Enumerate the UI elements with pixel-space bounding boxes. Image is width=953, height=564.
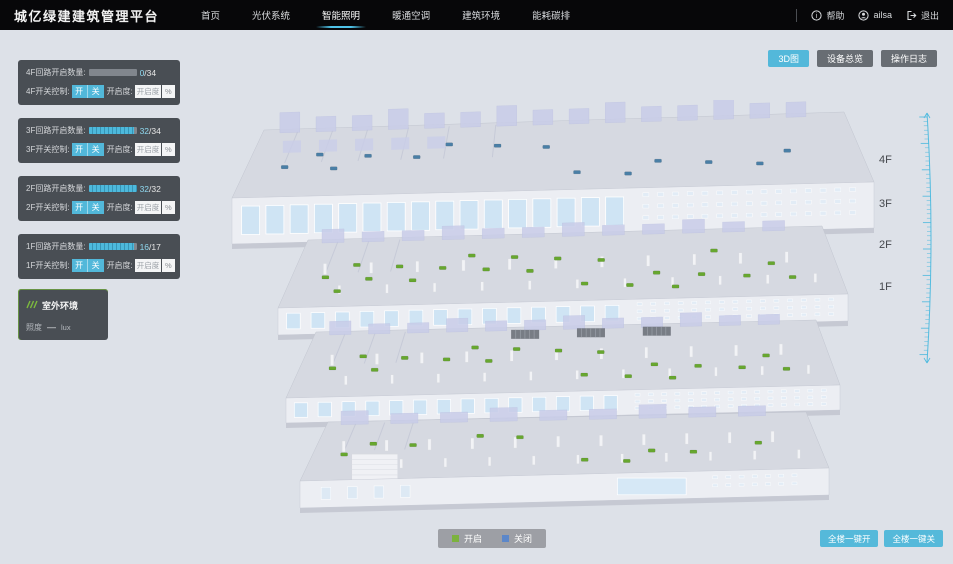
topbar-divider bbox=[796, 9, 797, 22]
floor-label-4f[interactable]: 4F bbox=[879, 154, 892, 166]
switch-group: 开 关 bbox=[72, 259, 104, 272]
switch-control-label: 2F开关控制: bbox=[26, 202, 70, 213]
dim-level-label: 开启度: bbox=[107, 202, 133, 213]
all-off-button[interactable]: 全楼一键关 bbox=[884, 530, 943, 547]
circuit-count-value: 32/32 bbox=[140, 184, 161, 194]
outdoor-panel-title: 室外环境 bbox=[42, 299, 78, 312]
illuminance-unit: lux bbox=[61, 323, 71, 332]
dim-level-label: 开启度: bbox=[107, 260, 133, 271]
circuit-count-label: 3F回路开启数量: bbox=[26, 125, 86, 136]
floor-label-2f[interactable]: 2F bbox=[879, 239, 892, 251]
app-title: 城亿绿建建筑管理平台 bbox=[14, 6, 159, 25]
switch-group: 开 关 bbox=[72, 143, 104, 156]
percent-button[interactable]: % bbox=[162, 85, 175, 98]
legend-on: 开启 bbox=[452, 532, 482, 545]
operation-log-button[interactable]: 操作日志 bbox=[881, 50, 937, 67]
nav-item-home[interactable]: 首页 bbox=[201, 4, 220, 26]
floor-panel-1f: 1F回路开启数量: 16/17 1F开关控制: 开 关 开启度: % bbox=[18, 234, 180, 279]
circuit-count-value: 16/17 bbox=[140, 242, 161, 252]
nav-item-pv[interactable]: 光伏系统 bbox=[252, 4, 290, 26]
switch-group: 开 关 bbox=[72, 201, 104, 214]
view-3d-button[interactable]: 3D图 bbox=[768, 50, 809, 67]
switch-on-button[interactable]: 开 bbox=[72, 259, 88, 272]
environment-icon bbox=[26, 296, 38, 314]
all-on-button[interactable]: 全楼一键开 bbox=[820, 530, 879, 547]
logout-button[interactable]: 退出 bbox=[906, 9, 939, 22]
status-legend: 开启 关闭 bbox=[438, 529, 546, 548]
nav-item-lighting[interactable]: 智能照明 bbox=[322, 4, 360, 26]
logout-icon bbox=[906, 10, 917, 21]
circuit-progress-bar bbox=[89, 69, 137, 76]
floor-control-column: 4F回路开启数量: 0/34 4F开关控制: 开 关 开启度: % 3F回路开启… bbox=[18, 60, 188, 340]
circuit-count-value: 32/34 bbox=[140, 126, 161, 136]
device-overview-button[interactable]: 设备总览 bbox=[817, 50, 873, 67]
legend-on-swatch bbox=[452, 535, 459, 542]
user-avatar-icon bbox=[858, 10, 869, 21]
switch-on-button[interactable]: 开 bbox=[72, 143, 88, 156]
nav-item-hvac[interactable]: 暖通空调 bbox=[392, 4, 430, 26]
building-3d-view[interactable] bbox=[222, 100, 882, 518]
main-nav: 首页 光伏系统 智能照明 暖通空调 建筑环境 能耗碳排 bbox=[201, 4, 570, 26]
circuit-count-label: 1F回路开启数量: bbox=[26, 241, 86, 252]
dim-level-label: 开启度: bbox=[107, 144, 133, 155]
percent-button[interactable]: % bbox=[162, 201, 175, 214]
dim-level-label: 开启度: bbox=[107, 86, 133, 97]
top-bar: 城亿绿建建筑管理平台 首页 光伏系统 智能照明 暖通空调 建筑环境 能耗碳排 i… bbox=[0, 0, 953, 30]
help-button[interactable]: i 帮助 bbox=[811, 9, 844, 22]
illuminance-label: 照度 bbox=[26, 322, 42, 333]
switch-off-button[interactable]: 关 bbox=[88, 259, 104, 272]
percent-button[interactable]: % bbox=[162, 143, 175, 156]
circuit-progress-bar bbox=[89, 243, 137, 250]
svg-text:i: i bbox=[816, 13, 818, 20]
circuit-count-label: 2F回路开启数量: bbox=[26, 183, 86, 194]
switch-on-button[interactable]: 开 bbox=[72, 201, 88, 214]
switch-off-button[interactable]: 关 bbox=[88, 201, 104, 214]
nav-item-env[interactable]: 建筑环境 bbox=[462, 4, 500, 26]
circuit-count-value: 0/34 bbox=[140, 68, 157, 78]
switch-group: 开 关 bbox=[72, 85, 104, 98]
legend-off: 关闭 bbox=[502, 532, 532, 545]
switch-control-label: 3F开关控制: bbox=[26, 144, 70, 155]
help-icon: i bbox=[811, 10, 822, 21]
floor-label-1f[interactable]: 1F bbox=[879, 281, 892, 293]
floor-panel-3f: 3F回路开启数量: 32/34 3F开关控制: 开 关 开启度: % bbox=[18, 118, 180, 163]
switch-on-button[interactable]: 开 bbox=[72, 85, 88, 98]
floor-scale-ruler bbox=[914, 107, 940, 369]
illuminance-value: — bbox=[47, 322, 56, 332]
switch-control-label: 1F开关控制: bbox=[26, 260, 70, 271]
user-menu[interactable]: ailsa bbox=[858, 10, 892, 21]
circuit-progress-bar bbox=[89, 185, 137, 192]
dim-level-input[interactable] bbox=[135, 201, 161, 214]
outdoor-environment-panel: 室外环境 照度 — lux bbox=[18, 289, 108, 340]
legend-off-swatch bbox=[502, 535, 509, 542]
dim-level-input[interactable] bbox=[135, 85, 161, 98]
switch-control-label: 4F开关控制: bbox=[26, 86, 70, 97]
switch-off-button[interactable]: 关 bbox=[88, 143, 104, 156]
floor-label-3f[interactable]: 3F bbox=[879, 198, 892, 210]
percent-button[interactable]: % bbox=[162, 259, 175, 272]
circuit-progress-bar bbox=[89, 127, 137, 134]
dim-level-input[interactable] bbox=[135, 143, 161, 156]
user-name: ailsa bbox=[873, 10, 892, 20]
floor-panel-4f: 4F回路开启数量: 0/34 4F开关控制: 开 关 开启度: % bbox=[18, 60, 180, 105]
dim-level-input[interactable] bbox=[135, 259, 161, 272]
switch-off-button[interactable]: 关 bbox=[88, 85, 104, 98]
nav-item-energy[interactable]: 能耗碳排 bbox=[532, 4, 570, 26]
floor-panel-2f: 2F回路开启数量: 32/32 2F开关控制: 开 关 开启度: % bbox=[18, 176, 180, 221]
building-master-controls: 全楼一键开 全楼一键关 bbox=[820, 530, 943, 547]
view-switcher: 3D图 设备总览 操作日志 bbox=[768, 50, 937, 67]
circuit-count-label: 4F回路开启数量: bbox=[26, 67, 86, 78]
